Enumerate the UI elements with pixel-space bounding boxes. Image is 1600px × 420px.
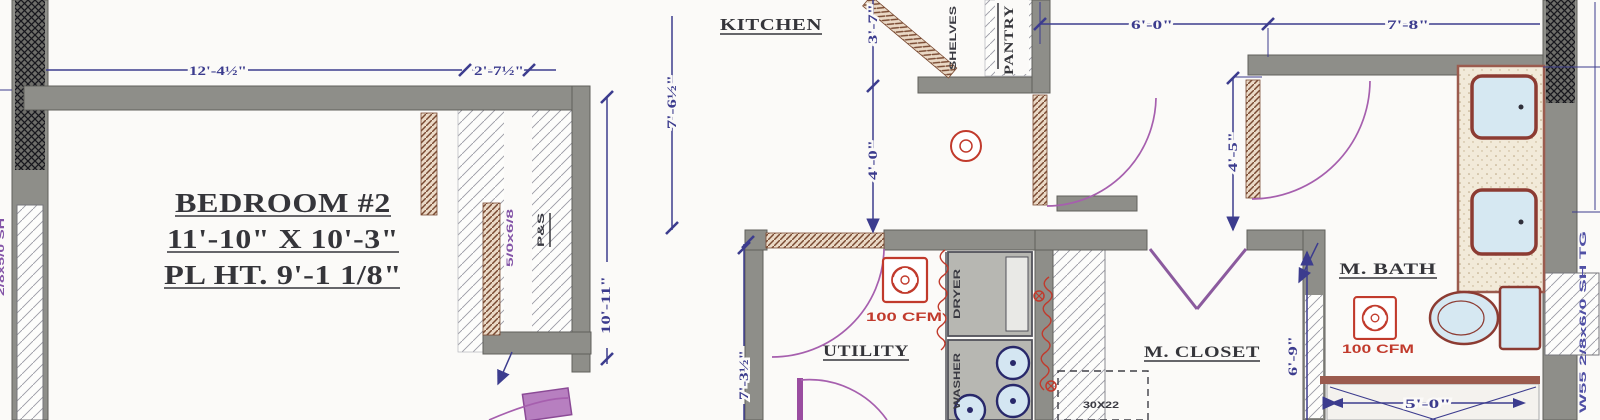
door-leaf-bypass-b: [483, 203, 500, 335]
wall-master-closet-left: [1035, 250, 1053, 420]
wall-pantry-bottom: [918, 77, 1050, 93]
wall-right-crosshatch: [1546, 0, 1575, 103]
toilet-bowl: [1430, 292, 1498, 344]
door-arc-utility-top: [772, 249, 884, 357]
exhaust-fan-bath-icon: [1354, 297, 1396, 339]
label-bedroom2-name: BEDROOM #2: [175, 188, 391, 218]
sink-1-drain: [1519, 105, 1524, 110]
label-master-bath: M. BATH: [1340, 261, 1437, 278]
label-bedroom2-plate-height: PL HT. 9'-1 1/8": [164, 260, 402, 290]
master-closet-shelf-hatch: [1053, 250, 1105, 420]
label-pantry-shelves: SHELVES: [948, 6, 958, 70]
dim-closet-offset: 2'-7½": [474, 63, 524, 78]
label-dryer: DRYER: [952, 268, 962, 319]
label-fan-cfm-bath: 100 CFM: [1342, 342, 1414, 356]
wall-utility-top-right: [884, 230, 1035, 250]
label-window-tag-left: 2/8x5/0 SH: [0, 218, 7, 296]
dim-bath-width: 7'-8": [1387, 17, 1429, 32]
label-attic-access: 30X22: [1083, 400, 1119, 410]
washer-hookup-2-center: [1010, 398, 1016, 404]
door-leaf-mcloset-right: [1197, 249, 1246, 309]
door-leaf-hall-1: [1033, 95, 1047, 205]
label-closet-door-tag: 5/0x6/8: [505, 209, 516, 267]
door-swing-arrow-bedroom: [498, 352, 512, 384]
toilet-tank: [1500, 287, 1540, 349]
wall-bedroom-top: [24, 86, 590, 110]
shower-curb: [1320, 376, 1540, 384]
label-fan-cfm-utility: 100 CFM: [866, 310, 942, 324]
door-leaf-mcloset-left: [1150, 249, 1197, 309]
door-arc-hall-2: [1252, 81, 1370, 199]
ceiling-fixture-symbol: [951, 131, 981, 161]
dim-hall-depth: 4'-5": [1225, 132, 1240, 172]
door-arc-utility-bottom: [801, 380, 887, 420]
dim-closet-depth: 6'-9": [1285, 336, 1300, 376]
wall-bedroom-closet-right: [572, 86, 590, 372]
label-bedroom2-size: 11'-10" X 10'-3": [167, 224, 399, 254]
dim-kitchen-depth: 7'-6½": [664, 75, 679, 129]
dim-kitchen-seg-lower: 4'-0": [865, 140, 880, 180]
label-kitchen: KITCHEN: [720, 15, 822, 34]
window-left: [17, 205, 43, 420]
label-washer: WASHER: [952, 352, 962, 409]
exhaust-fan-utility-icon: [883, 258, 927, 302]
label-pantry: PANTRY: [1002, 5, 1016, 75]
dim-bedroom-width: 12'-4½": [189, 63, 247, 78]
floor-plan-canvas: 12'-4½" 2'-7½" 7'-6½" 3'-7" 4'-0" 6'-0" …: [0, 0, 1600, 420]
dim-kitchen-seg-upper: 3'-7": [865, 4, 880, 44]
sink-1: [1472, 76, 1536, 138]
door-arc-hall-1: [1047, 98, 1156, 206]
floor-plan-sheet: 12'-4½" 2'-7½" 7'-6½" 3'-7" 4'-0" 6'-0" …: [0, 0, 1600, 420]
wall-left-crosshatch: [15, 0, 45, 170]
label-window-tag-right: W55 2/8x6/0 SH TG: [1578, 231, 1589, 413]
window-right: [1545, 273, 1599, 355]
dim-utility-depth: 7'-3½": [736, 350, 751, 400]
door-leaf-bypass-a: [421, 113, 437, 215]
wall-master-closet-top-right: [1247, 230, 1303, 250]
dim-bedroom-depth: 10'-11": [598, 276, 613, 334]
door-leaf-utility-bottom: [797, 378, 803, 420]
door-leaf-utility-top: [766, 233, 884, 248]
label-pole-and-shelf: P&S: [536, 213, 546, 247]
washer-hookup-3-center: [967, 407, 973, 413]
dim-hall-width: 6'-0": [1131, 17, 1173, 32]
washer-hookup-1-center: [1010, 360, 1016, 366]
dim-shower-width: 5'-0": [1405, 396, 1451, 411]
label-utility: UTILITY: [823, 343, 909, 360]
sink-2: [1472, 190, 1536, 254]
wall-pantry-right: [1032, 0, 1050, 93]
wall-master-closet-top-left: [1035, 230, 1147, 250]
sink-2-drain: [1519, 220, 1524, 225]
dryer-shelf-strip: [1006, 257, 1028, 331]
label-master-closet: M. CLOSET: [1144, 344, 1260, 361]
door-leaf-hall-2: [1246, 80, 1260, 198]
